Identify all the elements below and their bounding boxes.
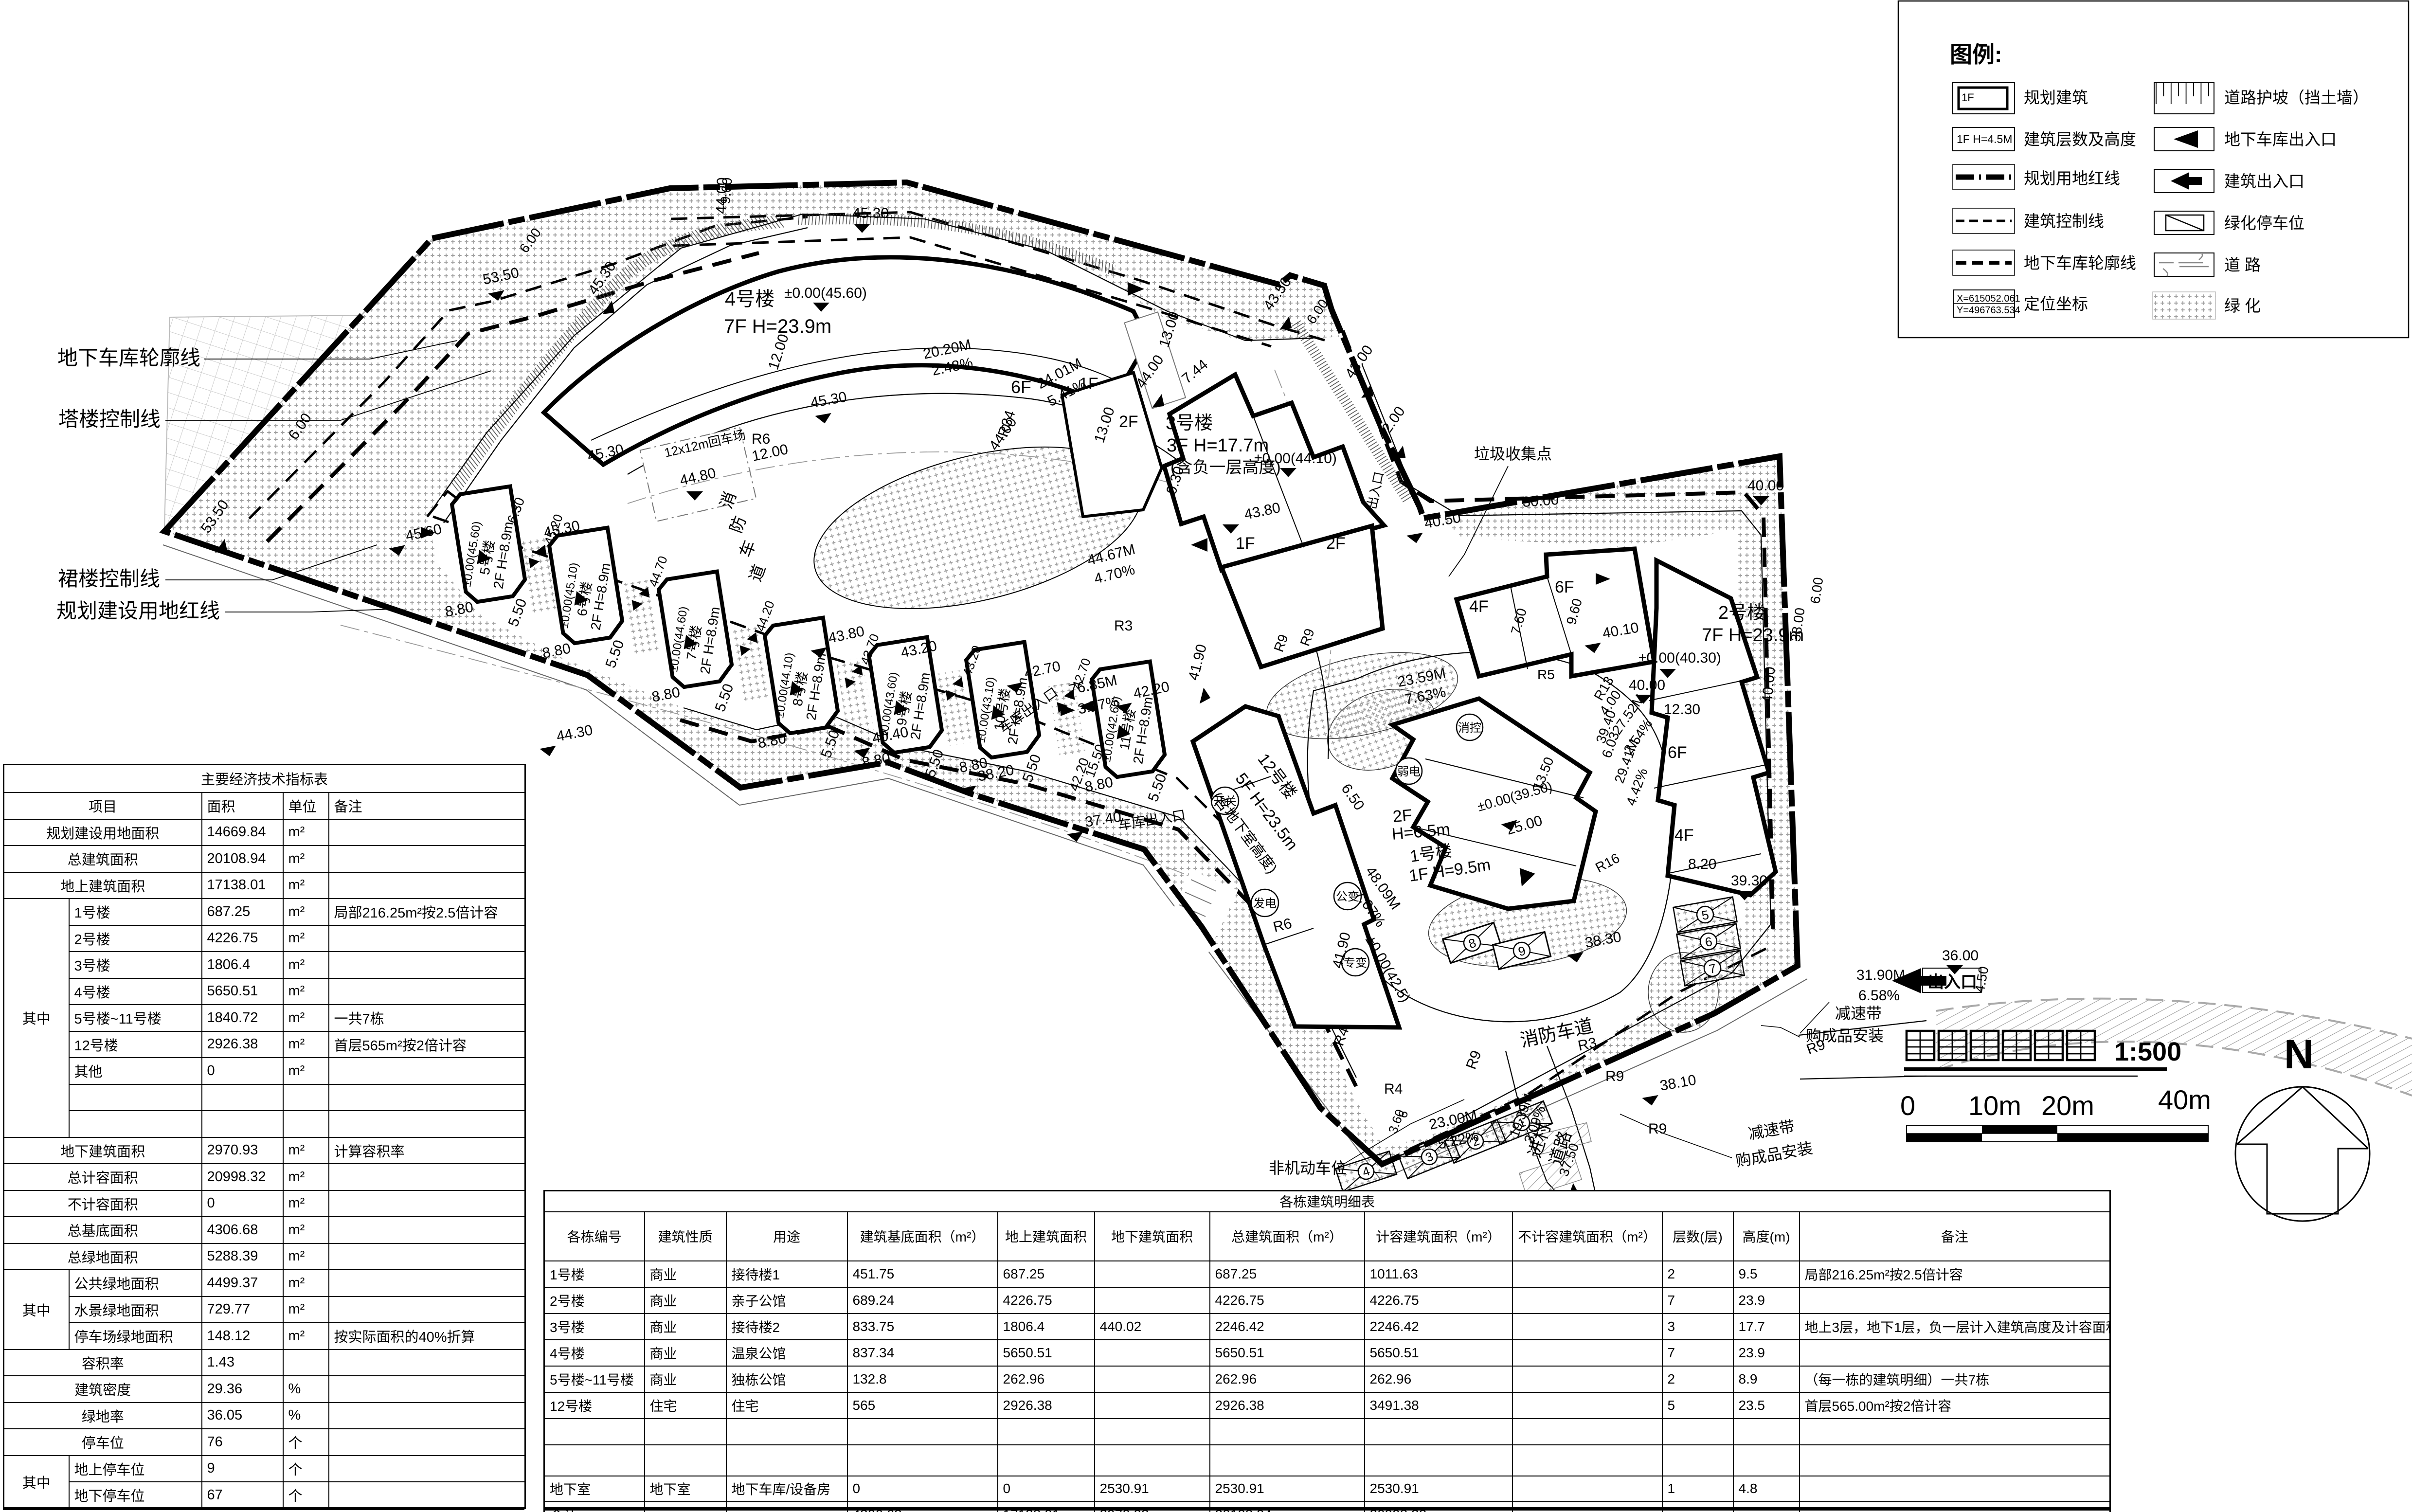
svg-text:建筑控制线: 建筑控制线 <box>2024 212 2104 230</box>
svg-text:R4: R4 <box>1384 1081 1403 1097</box>
svg-text:2F: 2F <box>1119 413 1138 431</box>
svg-text:40.00: 40.00 <box>1629 677 1665 693</box>
svg-text:10m: 10m <box>1968 1090 2021 1121</box>
svg-text:31.90M: 31.90M <box>1856 967 1905 983</box>
svg-text:X=615052.061: X=615052.061 <box>1957 293 2020 304</box>
svg-text:1F H=4.5M: 1F H=4.5M <box>1957 133 2012 145</box>
svg-text:Y=496763.534: Y=496763.534 <box>1957 305 2020 316</box>
svg-text:减速带: 减速带 <box>1835 1005 1882 1022</box>
svg-text:4F: 4F <box>1674 826 1694 845</box>
svg-text:道 路: 道 路 <box>2224 256 2261 274</box>
svg-text:6F: 6F <box>1555 578 1574 596</box>
svg-text:36.00: 36.00 <box>1942 948 1979 964</box>
svg-text:出入口: 出入口 <box>1927 973 1977 991</box>
svg-text:R9: R9 <box>1648 1121 1667 1137</box>
svg-text:44.00: 44.00 <box>713 177 731 214</box>
svg-text:垃圾收集点: 垃圾收集点 <box>1474 445 1552 463</box>
svg-text:建筑层数及高度: 建筑层数及高度 <box>2024 130 2136 148</box>
svg-text:1F: 1F <box>1079 375 1098 393</box>
svg-text:6.58%: 6.58% <box>1858 988 1900 1004</box>
svg-text:发电: 发电 <box>1253 897 1277 910</box>
svg-text:地下车库轮廓线: 地下车库轮廓线 <box>57 346 200 369</box>
svg-text:地下车库出入口: 地下车库出入口 <box>2224 130 2337 148</box>
svg-text:地下车库轮廓线: 地下车库轮廓线 <box>2024 254 2136 272</box>
svg-text:40.00: 40.00 <box>1747 478 1784 494</box>
svg-text:6F: 6F <box>1668 743 1687 762</box>
svg-text:40.00: 40.00 <box>1759 666 1778 704</box>
svg-text:±0.00(45.60): ±0.00(45.60) <box>784 285 867 301</box>
svg-text:12.30: 12.30 <box>1664 702 1700 718</box>
svg-text:45.30: 45.30 <box>852 205 889 221</box>
svg-text:1F: 1F <box>1236 534 1255 553</box>
svg-text:0: 0 <box>1900 1090 1915 1121</box>
svg-text:图例:: 图例: <box>1950 42 2002 67</box>
svg-text:20m: 20m <box>2041 1090 2094 1121</box>
svg-text:建筑出入口: 建筑出入口 <box>2224 172 2304 190</box>
svg-text:1F: 1F <box>1962 91 1974 104</box>
svg-text:定位坐标: 定位坐标 <box>2024 295 2088 313</box>
svg-text:6F: 6F <box>1011 377 1031 397</box>
svg-text:1:500: 1:500 <box>2114 1037 2181 1066</box>
svg-text:非机动车位: 非机动车位 <box>1269 1159 1347 1177</box>
svg-text:弱电: 弱电 <box>1397 765 1421 778</box>
svg-text:2号楼: 2号楼 <box>1718 603 1765 623</box>
svg-text:R3: R3 <box>1114 618 1133 634</box>
svg-text:8.20: 8.20 <box>1688 856 1716 872</box>
svg-text:39.30: 39.30 <box>1731 873 1767 889</box>
svg-text:规划用地红线: 规划用地红线 <box>2024 169 2120 187</box>
svg-text:30.00: 30.00 <box>1522 492 1559 510</box>
svg-text:±0.00(40.30): ±0.00(40.30) <box>1638 650 1721 666</box>
svg-text:N: N <box>2284 1031 2314 1077</box>
svg-text:道路护坡（挡土墙）: 道路护坡（挡土墙） <box>2224 89 2369 107</box>
svg-text:4F: 4F <box>1469 597 1489 616</box>
svg-text:R9: R9 <box>1605 1068 1624 1084</box>
svg-text:±0.00(44.10): ±0.00(44.10) <box>1254 450 1337 467</box>
svg-text:裙楼控制线: 裙楼控制线 <box>58 567 160 590</box>
svg-text:绿 化: 绿 化 <box>2224 297 2261 315</box>
svg-text:规划建筑: 规划建筑 <box>2024 89 2088 107</box>
svg-text:R5: R5 <box>1537 667 1555 682</box>
svg-text:2F: 2F <box>1326 534 1346 553</box>
svg-text:3F H=17.7m: 3F H=17.7m <box>1167 435 1269 456</box>
svg-text:40m: 40m <box>2158 1084 2211 1115</box>
svg-text:塔楼控制线: 塔楼控制线 <box>58 408 161 431</box>
svg-text:4号楼: 4号楼 <box>725 288 774 310</box>
svg-text:3号楼: 3号楼 <box>1166 413 1213 433</box>
svg-text:绿化停车位: 绿化停车位 <box>2224 214 2304 232</box>
svg-text:规划建设用地红线: 规划建设用地红线 <box>56 599 220 622</box>
svg-text:消控: 消控 <box>1458 721 1481 735</box>
svg-text:R6: R6 <box>752 431 770 447</box>
